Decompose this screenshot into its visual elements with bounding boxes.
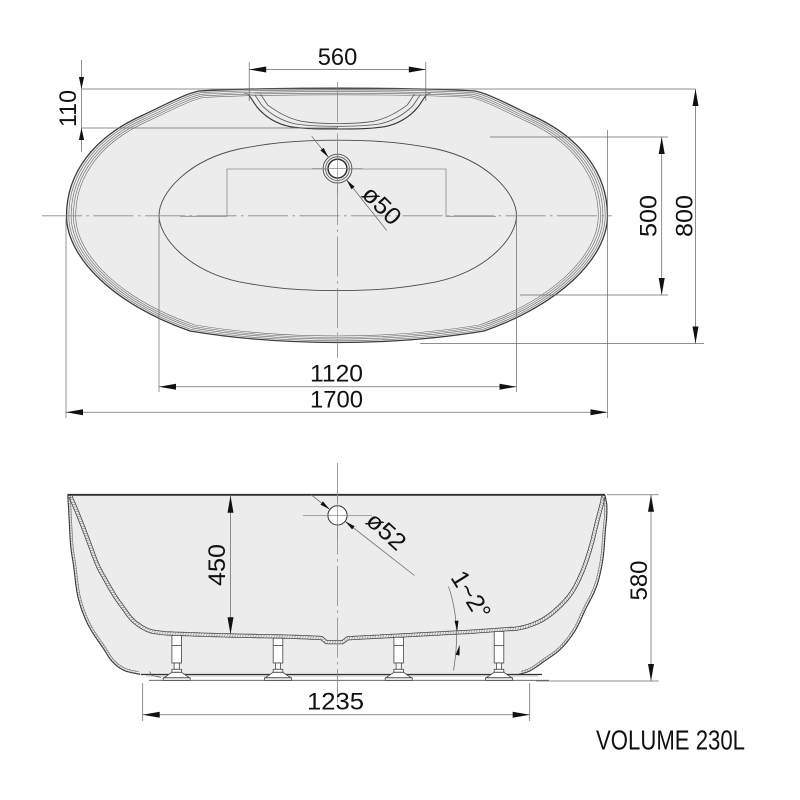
svg-text:110: 110 [55, 90, 82, 127]
svg-text:800: 800 [672, 195, 699, 237]
svg-text:560: 560 [318, 44, 358, 71]
svg-text:1235: 1235 [307, 689, 364, 716]
svg-text:500: 500 [636, 195, 663, 237]
svg-text:450: 450 [204, 544, 231, 586]
svg-text:VOLUME 230L: VOLUME 230L [596, 725, 745, 756]
svg-text:1120: 1120 [310, 361, 363, 388]
svg-text:1700: 1700 [310, 386, 363, 413]
svg-text:580: 580 [626, 561, 653, 601]
